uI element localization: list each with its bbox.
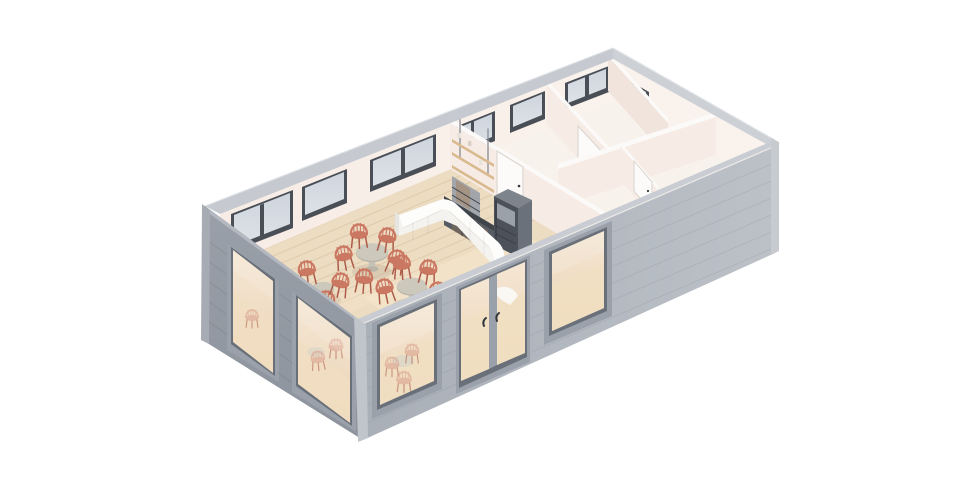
east-corner-trim: [771, 138, 779, 255]
door-mullion: [489, 274, 497, 369]
cafe-3d-render: [0, 0, 960, 482]
door-handle: [647, 190, 649, 192]
render-canvas: [0, 0, 960, 482]
shelf-jar: [479, 160, 482, 165]
door-handle: [518, 185, 521, 188]
west-corner-trim: [201, 204, 210, 344]
shelf-jar: [468, 141, 471, 146]
shelf-jar: [457, 133, 461, 138]
